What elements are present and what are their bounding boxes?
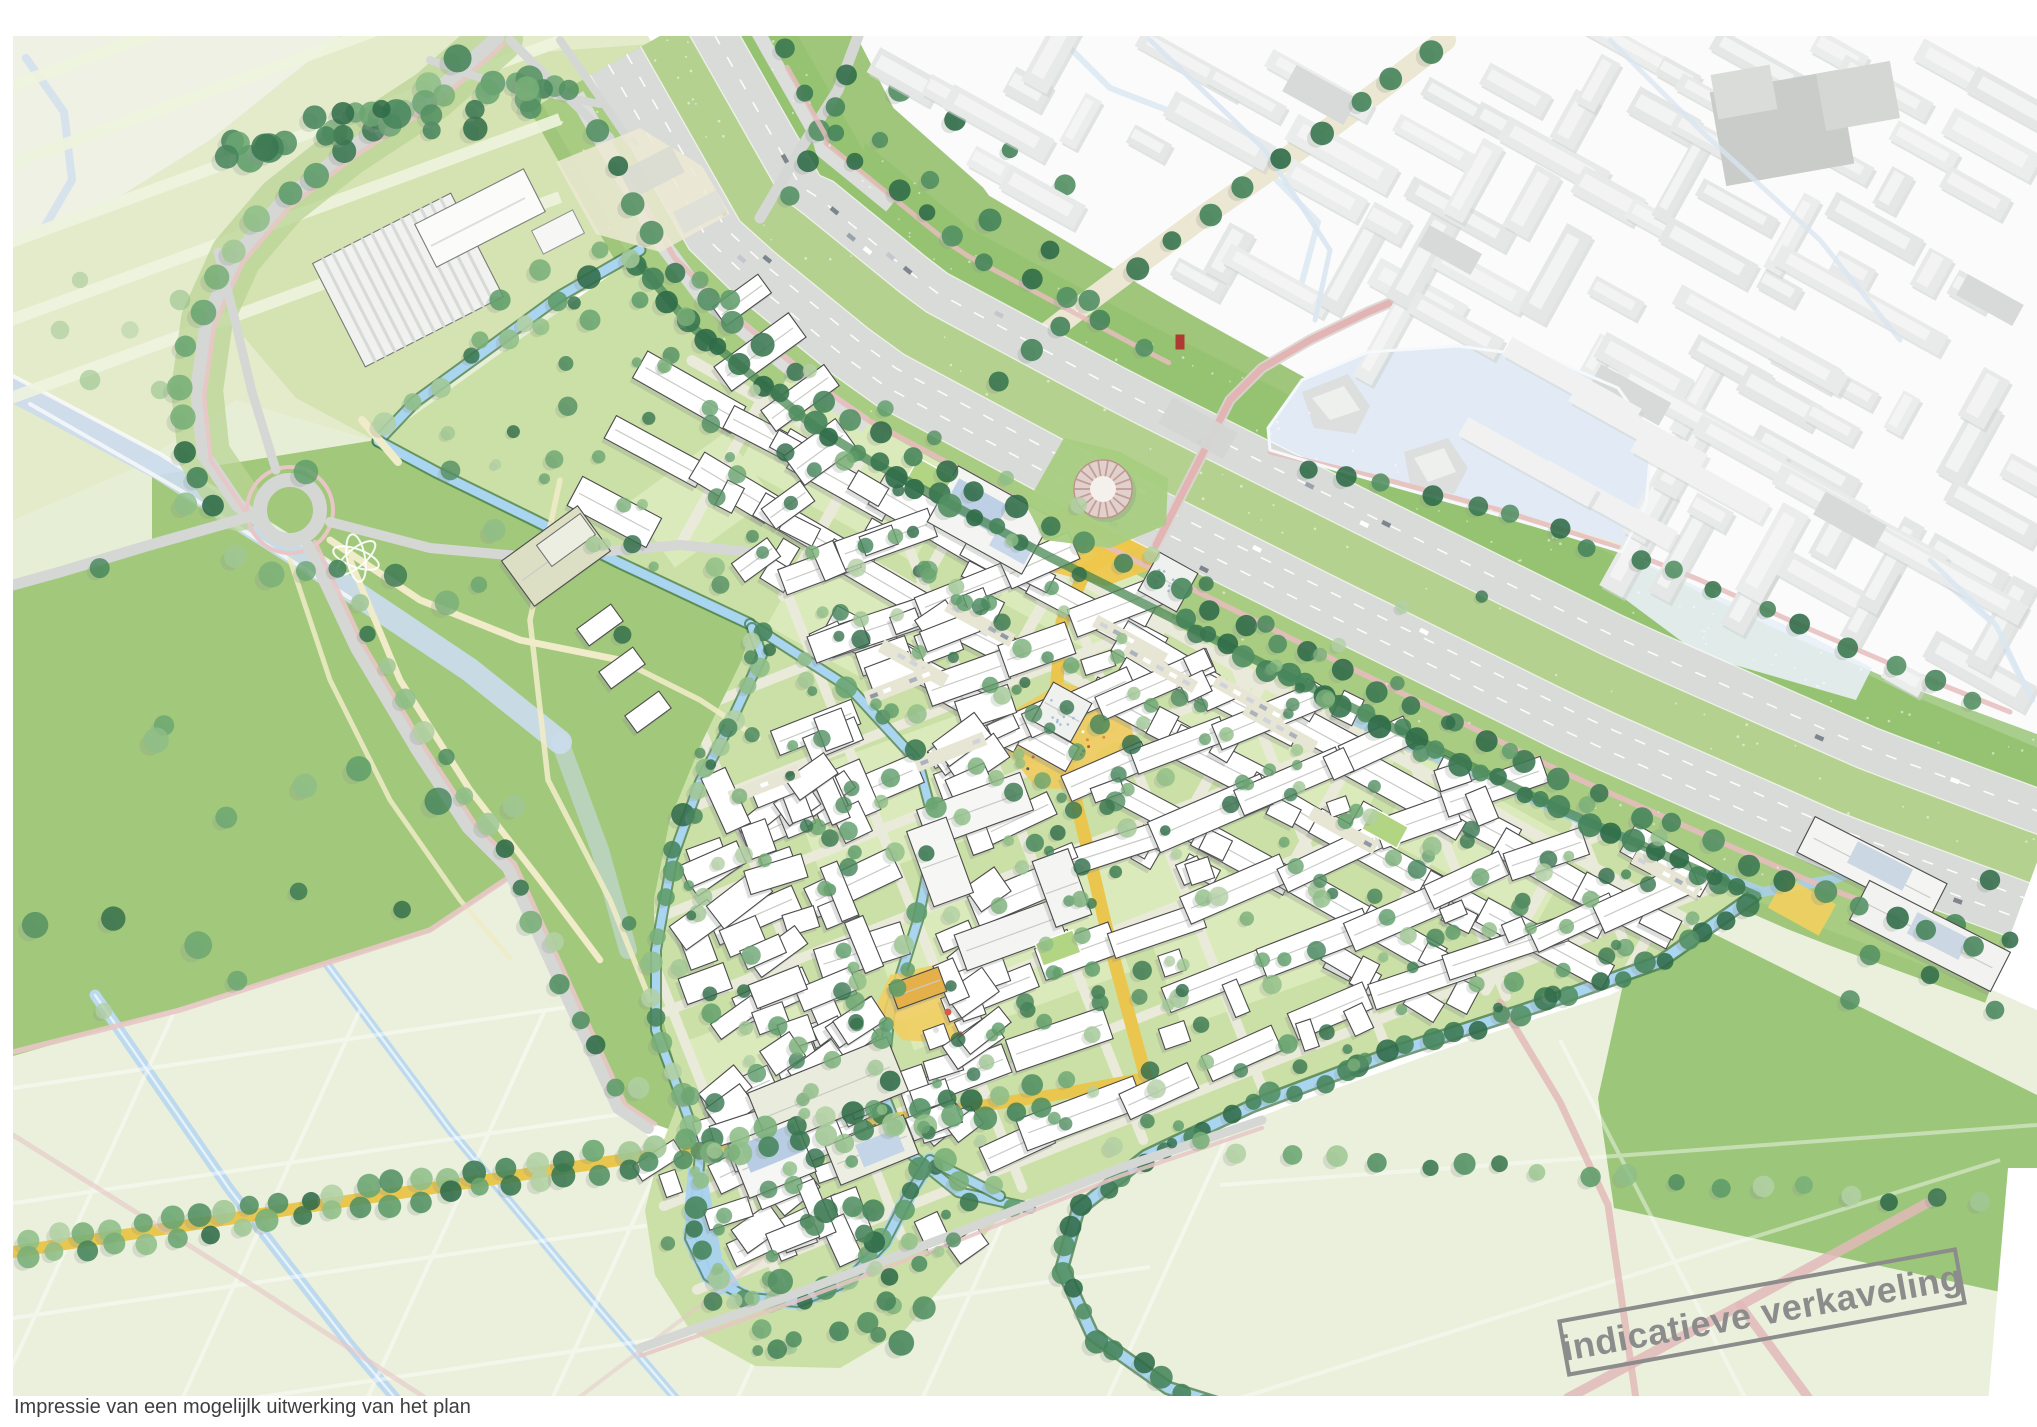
svg-text:Impressie van een mogelijlk ui: Impressie van een mogelijlk uitwerking v…	[14, 1396, 471, 1418]
